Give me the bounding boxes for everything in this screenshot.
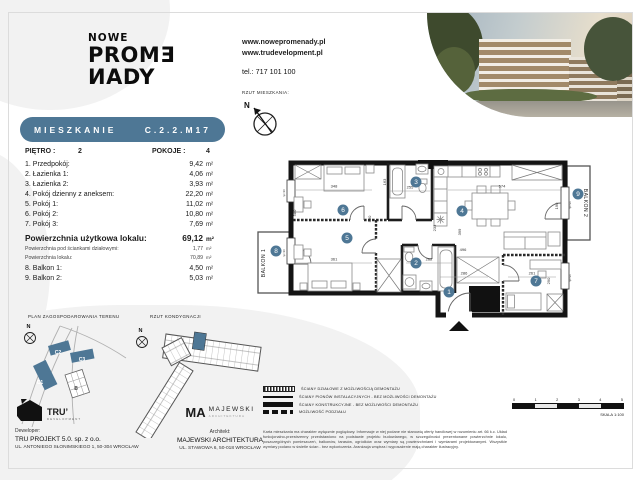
room-list: 1. Przedpokój:9,42m² 2. Łazienka 1:4,06m… [25, 161, 221, 231]
room-area: 7,69 [173, 221, 203, 228]
room-label: 4. Pokój dzienny z aneksem: [25, 191, 173, 198]
entrance-gap [446, 312, 472, 319]
balcony-row: 9. Balkon 2:5,03m² [25, 275, 221, 285]
svg-text:290: 290 [546, 277, 551, 284]
partition-area-label: Powierzchnia pod ściankami działowymi: [25, 246, 175, 252]
developer-logo: TRU’ DEVELOPMENT [15, 399, 150, 421]
svg-text:262: 262 [426, 257, 433, 262]
balcony-area: 5,03 [173, 275, 203, 282]
developer-address: UL. ANTONIEGO SŁONIMSKIEGO 1, 50-304 WRO… [15, 445, 150, 450]
building-b [65, 369, 90, 397]
room-unit: m² [203, 192, 221, 198]
room-area: 10,80 [173, 211, 203, 218]
balcony-area: 4,50 [173, 265, 203, 272]
svg-text:286: 286 [461, 271, 468, 276]
room-unit: m² [203, 222, 221, 228]
usable-area-row: Powierzchnia użytkowa lokalu:69,12m² [25, 233, 221, 246]
logo-line: PROMƎ [88, 45, 175, 66]
scale-label: SKALA 1:100 [512, 412, 624, 417]
usable-area-value: 69,12 [171, 233, 203, 243]
balcony-label: 8. Balkon 1: [25, 265, 173, 272]
legend-label: ŚCIANY DZIAŁOWE Z MOŻLIWOŚCIĄ DEMONTAŻU [301, 387, 400, 391]
scale-tick: 4 [599, 398, 601, 402]
entrance-shaft [469, 286, 500, 312]
legend-row: ŚCIANY DZIAŁOWE Z MOŻLIWOŚCIĄ DEMONTAŻU [263, 386, 503, 392]
svg-text:hp=90: hp=90 [282, 189, 286, 197]
partition-area-unit: m² [203, 246, 221, 251]
svg-text:hp=90: hp=90 [568, 201, 572, 209]
room-label: 2. Łazienka 1: [25, 171, 173, 178]
total-area-value: 70,89 [175, 255, 203, 261]
highlighted-unit [192, 332, 206, 351]
legend-swatch-partition [263, 386, 295, 392]
svg-text:261: 261 [529, 271, 536, 276]
room-row: 1. Przedpokój:9,42m² [25, 161, 221, 171]
room-row: 7. Pokój 3:7,69m² [25, 221, 221, 231]
scale-bar: 0 1 2 3 4 5 SKALA 1:100 [512, 398, 624, 417]
room-unit: m² [203, 182, 221, 188]
room-area: 9,42 [173, 161, 203, 168]
total-area-label: Powierzchnia lokalu: [25, 255, 175, 261]
floor-plan: BALKON 1 BALKON 2 [250, 135, 595, 340]
total-area-unit: m² [203, 255, 221, 260]
room-area: 4,06 [173, 171, 203, 178]
rooms-label: POKOJE : [152, 148, 185, 155]
legend-label: MOŻLIWOŚĆ PODZIAŁU [299, 410, 346, 414]
legend-row: ŚCIANY KONSTRUKCYJNE - BEZ MOŻLIWOŚCI DE… [263, 402, 503, 407]
svg-text:348: 348 [331, 184, 338, 189]
usable-area-unit: m² [203, 236, 221, 243]
legend-label: ŚCIANY PIONÓW INSTALACYJNYCH - BEZ MOŻLI… [299, 395, 437, 399]
label-c3: C3 [79, 357, 86, 363]
svg-text:361: 361 [331, 257, 338, 262]
floor-label: PIĘTRO : [25, 148, 55, 155]
svg-text:4: 4 [460, 208, 464, 215]
svg-text:6: 6 [341, 207, 345, 214]
room-unit: m² [203, 202, 221, 208]
website-link-1: www.nowepromenady.pl [242, 36, 325, 47]
room-row: 6. Pokój 2:10,80m² [25, 211, 221, 221]
room-row: 4. Pokój dzienny z aneksem:22,20m² [25, 191, 221, 201]
road [427, 101, 632, 117]
room-label: 7. Pokój 3: [25, 221, 173, 228]
room-label: 3. Łazienka 2: [25, 181, 173, 188]
room-row: 5. Pokój 1:11,02m² [25, 201, 221, 211]
floor-value: 2 [78, 148, 82, 155]
scale-tick: 2 [556, 398, 558, 402]
website-link-2: www.trudevelopment.pl [242, 47, 325, 58]
area-summary: Powierzchnia użytkowa lokalu:69,12m² Pow… [25, 233, 221, 263]
legend-label: ŚCIANY KONSTRUKCYJNE - BEZ MOŻLIWOŚCI DE… [299, 403, 418, 407]
legend-row: ŚCIANY PIONÓW INSTALACYJNYCH - BEZ MOŻLI… [263, 395, 503, 399]
architect-logo: MA MAJEWSKI ARCHITEKTURA [185, 406, 254, 419]
plan-title: RZUT MIESZKANIA: [242, 90, 289, 95]
ma-logo-name: MAJEWSKI [209, 407, 255, 414]
svg-text:1: 1 [447, 289, 451, 296]
scale-ticks: 0 1 2 3 4 5 [512, 398, 624, 402]
balcony-1-label: BALKON 1 [261, 249, 267, 277]
svg-text:190: 190 [554, 202, 559, 209]
svg-text:N: N [244, 101, 250, 110]
site-plan-title: PLAN ZAGOSPODAROWANIA TERENU [28, 314, 119, 319]
room-label: 6. Pokój 2: [25, 211, 173, 218]
svg-text:2: 2 [414, 260, 418, 267]
svg-text:574: 574 [499, 184, 506, 189]
room-area: 11,02 [173, 201, 203, 208]
wall-legend: ŚCIANY DZIAŁOWE Z MOŻLIWOŚCIĄ DEMONTAŻU … [263, 386, 503, 417]
developer-role-label: Deweloper: [15, 428, 150, 434]
apartment-code: C.2.2.M17 [145, 125, 211, 135]
svg-text:hp=90: hp=90 [282, 249, 286, 257]
contact-block: www.nowepromenady.pl www.trudevelopment.… [242, 36, 325, 77]
tru-logo-subtext: DEVELOPMENT [47, 417, 81, 421]
balcony-label: 9. Balkon 2: [25, 275, 173, 282]
label-c2: C2 [55, 350, 62, 356]
room-area: 3,93 [173, 181, 203, 188]
label-b: B [74, 386, 78, 392]
brand-logo: NOWE PROMƎ ИADY [88, 33, 175, 88]
tru-logo-text: TRU’ [47, 408, 81, 417]
partition-area-value: 1,77 [175, 246, 203, 252]
developer-block: TRU’ DEVELOPMENT Deweloper: TRU PROJEKT … [15, 399, 150, 450]
svg-text:5: 5 [345, 235, 349, 242]
site-compass-icon: N [25, 324, 36, 344]
svg-text:233: 233 [432, 224, 437, 231]
partition-area-row: Powierzchnia pod ściankami działowymi:1,… [25, 246, 221, 255]
scale-tick: 3 [578, 398, 580, 402]
svg-text:8: 8 [274, 248, 278, 255]
ma-logo-subtext: ARCHITEKTURA [209, 414, 255, 418]
balcony-unit: m² [203, 276, 221, 282]
room-unit: m² [203, 172, 221, 178]
rooms-value: 4 [206, 148, 210, 155]
svg-text:hp=90: hp=90 [568, 274, 572, 282]
legend-swatch-installation [263, 396, 293, 399]
usable-area-label: Powierzchnia użytkowa lokalu: [25, 233, 171, 243]
svg-text:3: 3 [414, 179, 418, 186]
svg-text:9: 9 [576, 191, 580, 198]
room-row: 3. Łazienka 2:3,93m² [25, 181, 221, 191]
room-unit: m² [203, 212, 221, 218]
building-render-photo [427, 13, 632, 117]
svg-text:7: 7 [534, 278, 538, 285]
svg-text:163: 163 [382, 178, 387, 185]
svg-text:580: 580 [292, 209, 297, 216]
balcony-unit: m² [203, 266, 221, 272]
tru-logo-icon [15, 399, 43, 421]
apartment-title-pill: MIESZKANIE C.2.2.M17 [20, 117, 225, 142]
developer-name: TRU PROJEKT 5.0. sp. z o.o. [15, 436, 150, 443]
floor-overview-title: RZUT KONDYGNACJI [150, 314, 201, 319]
room-unit: m² [203, 162, 221, 168]
legend-swatch-division [263, 410, 293, 414]
legend-swatch-structural [263, 402, 293, 407]
logo-line: ИADY [88, 67, 175, 88]
svg-text:399: 399 [457, 228, 462, 235]
total-area-row: Powierzchnia lokalu:70,89m² [25, 255, 221, 264]
scale-tick: 5 [621, 398, 623, 402]
room-label: 1. Przedpokój: [25, 161, 173, 168]
phone-number: tel.: 717 101 100 [242, 66, 325, 77]
room-row: 2. Łazienka 1:4,06m² [25, 171, 221, 181]
legal-disclaimer: Karta mieszkania ma charakter wyłącznie … [263, 429, 507, 449]
apartment-card: NOWE PROMƎ ИADY www.nowepromenady.pl www… [0, 0, 640, 480]
entrance-arrow-icon [449, 321, 469, 331]
scale-segments [512, 403, 624, 409]
label-c1: C1 [37, 380, 44, 386]
logo-line: NOWE [88, 33, 175, 44]
svg-text:496: 496 [460, 247, 467, 252]
legend-row: MOŻLIWOŚĆ PODZIAŁU [263, 410, 503, 414]
room-area: 22,20 [173, 191, 203, 198]
svg-text:590: 590 [367, 215, 372, 222]
balcony-list: 8. Balkon 1:4,50m² 9. Balkon 2:5,03m² [25, 265, 221, 285]
scale-tick: 1 [535, 398, 537, 402]
tree-left-small [433, 47, 475, 95]
svg-text:N: N [139, 328, 143, 334]
overview-compass-icon: N [137, 328, 148, 348]
ma-logo-text: MA [185, 406, 205, 419]
balcony-row: 8. Balkon 1:4,50m² [25, 265, 221, 275]
room-label: 5. Pokój 1: [25, 201, 173, 208]
apartment-label: MIESZKANIE [34, 125, 116, 135]
svg-text:N: N [27, 324, 31, 330]
scale-tick: 0 [513, 398, 515, 402]
